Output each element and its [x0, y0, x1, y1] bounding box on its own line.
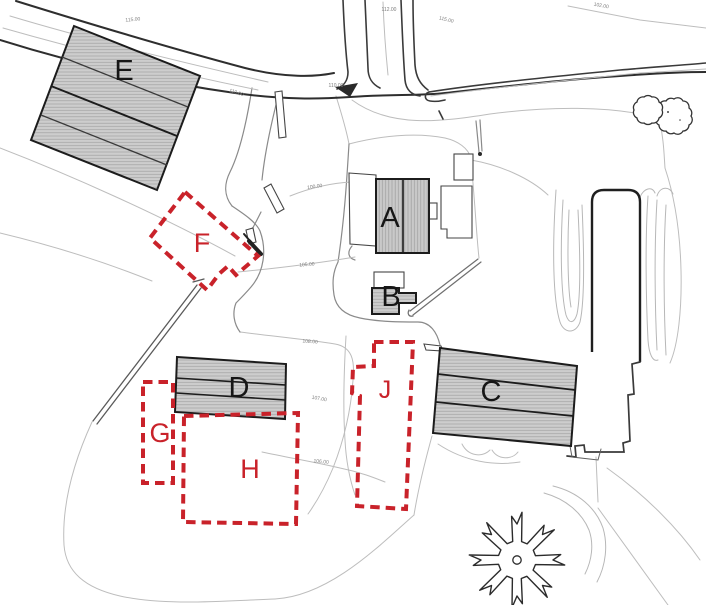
road-tick	[439, 111, 443, 119]
building-b-label: B	[381, 281, 400, 313]
courtyard-walls	[567, 190, 640, 460]
road-edge	[413, 0, 428, 90]
contour-line	[0, 233, 152, 281]
farm-track	[410, 259, 481, 315]
pole-base	[478, 152, 482, 156]
tree-icon	[633, 95, 692, 134]
elevation-label: 102.00	[593, 2, 609, 11]
proposed-building-h: H	[183, 413, 298, 524]
site-boundary	[64, 422, 414, 602]
site-plan-drawing: E A B C D F G H J	[0, 0, 706, 605]
tree-trunk	[513, 556, 521, 564]
hedge-line	[640, 189, 655, 197]
walled-loop	[592, 190, 640, 362]
building-e-roof	[31, 26, 200, 190]
elevation-label: 115.00	[125, 16, 141, 23]
hedge-curve	[232, 206, 264, 332]
tree-star-icon	[469, 512, 564, 605]
outbuilding	[349, 173, 376, 246]
elevation-label: 112.00	[382, 7, 397, 13]
tree-canopy	[633, 95, 662, 124]
elevation-label: 105.00	[299, 261, 315, 268]
building-c-roof	[433, 348, 577, 446]
elevation-label: 100.00	[307, 183, 323, 191]
bush-line	[492, 450, 518, 458]
hedge-line	[664, 205, 666, 355]
contour-line	[568, 6, 706, 28]
proposed-j-label: J	[379, 376, 392, 404]
building-e: E	[31, 26, 200, 190]
yard-line	[596, 457, 598, 502]
elevation-label: 108.00	[302, 338, 318, 345]
gate-symbol	[264, 184, 284, 213]
outbuilding	[454, 154, 473, 180]
hedge-line	[655, 200, 657, 350]
building-d-group: D	[175, 357, 286, 419]
building-b-group: B	[372, 272, 416, 314]
outbuilding	[441, 186, 472, 238]
site-boundary	[414, 436, 432, 515]
site-plan: E A B C D F G H J	[0, 0, 706, 605]
courtyard-wall	[567, 362, 640, 457]
field-line	[665, 168, 681, 363]
field-line	[607, 468, 700, 560]
contour-106	[262, 452, 385, 482]
proposed-building-f: F	[150, 192, 258, 290]
building-c-group: C	[433, 348, 577, 446]
field-line	[598, 508, 668, 605]
tree-dot	[667, 111, 669, 113]
yard-line	[438, 444, 520, 463]
elevation-label: 107.00	[311, 395, 327, 404]
proposed-building-j: J	[352, 342, 413, 509]
track-line	[226, 88, 252, 206]
hedge-line	[568, 210, 571, 307]
elevation-label: 115.00	[438, 15, 454, 24]
building-c-label: C	[481, 376, 502, 408]
road-edge	[337, 0, 348, 89]
yard-boundary	[471, 160, 548, 195]
building-d-label: D	[229, 372, 250, 404]
proposed-g-label: G	[149, 418, 170, 448]
pole-symbol	[476, 120, 482, 152]
yard-boundary	[336, 96, 349, 144]
road-edge	[365, 0, 380, 88]
building-a-group: A	[349, 154, 473, 253]
elevation-label: 110.00	[329, 83, 344, 89]
road-edge	[429, 63, 706, 92]
proposed-f-label: F	[194, 228, 211, 258]
elevation-label: 106.00	[313, 458, 329, 466]
proposed-outline-j	[352, 342, 413, 509]
yard-boundary	[349, 135, 471, 158]
building-e-label: E	[114, 55, 133, 87]
building-a-label: A	[380, 202, 400, 234]
elevation-label: 110.00	[228, 88, 244, 98]
proposed-h-label: H	[240, 454, 260, 484]
field-line	[352, 100, 655, 121]
hedge-line	[657, 188, 673, 196]
proposed-building-g: G	[143, 382, 173, 483]
bush-line	[462, 444, 490, 455]
road-edge	[401, 0, 420, 96]
tree-dot	[679, 119, 681, 121]
outbuilding	[429, 203, 437, 219]
